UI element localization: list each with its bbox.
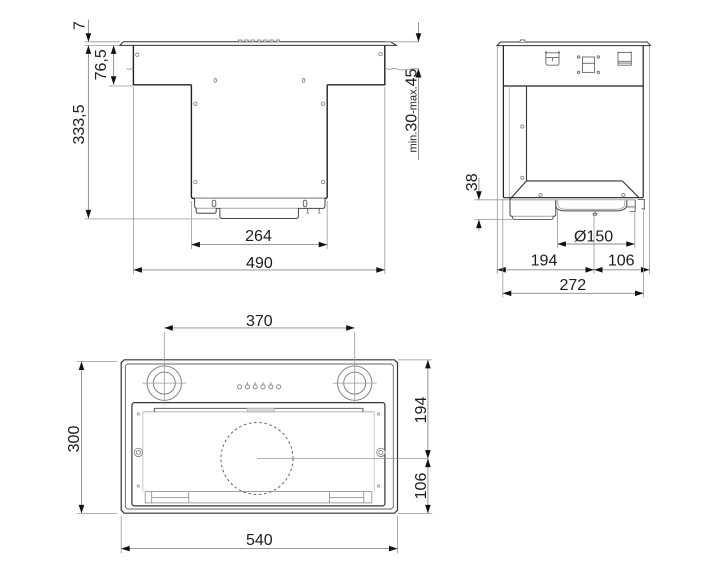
- svg-text:333,5: 333,5: [71, 104, 88, 144]
- svg-text:300: 300: [66, 426, 83, 453]
- svg-text:76,5: 76,5: [93, 49, 110, 80]
- svg-text:272: 272: [559, 277, 586, 294]
- svg-text:106: 106: [608, 253, 635, 270]
- svg-text:194: 194: [413, 397, 430, 424]
- svg-text:min.30-max.45: min.30-max.45: [403, 68, 420, 152]
- svg-text:264: 264: [245, 228, 272, 245]
- svg-text:540: 540: [246, 532, 273, 549]
- svg-text:370: 370: [246, 313, 273, 330]
- svg-text:490: 490: [246, 255, 273, 272]
- svg-text:38: 38: [464, 173, 481, 191]
- svg-text:7: 7: [71, 21, 88, 30]
- svg-text:106: 106: [413, 473, 430, 500]
- svg-text:194: 194: [531, 253, 558, 270]
